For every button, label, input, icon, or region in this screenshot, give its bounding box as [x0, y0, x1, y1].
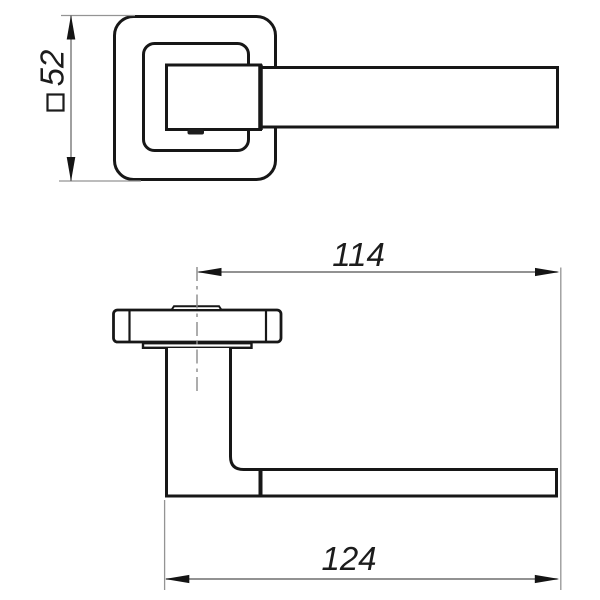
lever-bar-front	[261, 68, 558, 128]
square-symbol	[48, 95, 64, 111]
front-view	[115, 17, 558, 180]
dimension-114: 114	[197, 236, 560, 276]
arrowhead-114-right	[535, 268, 560, 276]
dim-124-label: 124	[321, 540, 376, 577]
dim-114-label: 114	[332, 236, 385, 273]
spring-clip-notch	[188, 129, 205, 135]
drawing-canvas: 52 114 124	[0, 0, 600, 600]
dim-52-label: 52	[34, 50, 71, 87]
arrowhead-52-down	[67, 157, 76, 182]
technical-drawing: 52 114 124	[0, 0, 600, 600]
arrowhead-124-right	[535, 575, 560, 583]
handle-profile	[167, 348, 557, 496]
arrowhead-52-up	[67, 15, 76, 40]
side-view	[114, 267, 557, 496]
arrowhead-114-left	[197, 268, 222, 276]
arrowhead-124-left	[165, 575, 190, 583]
handle-neck-front	[167, 65, 261, 130]
